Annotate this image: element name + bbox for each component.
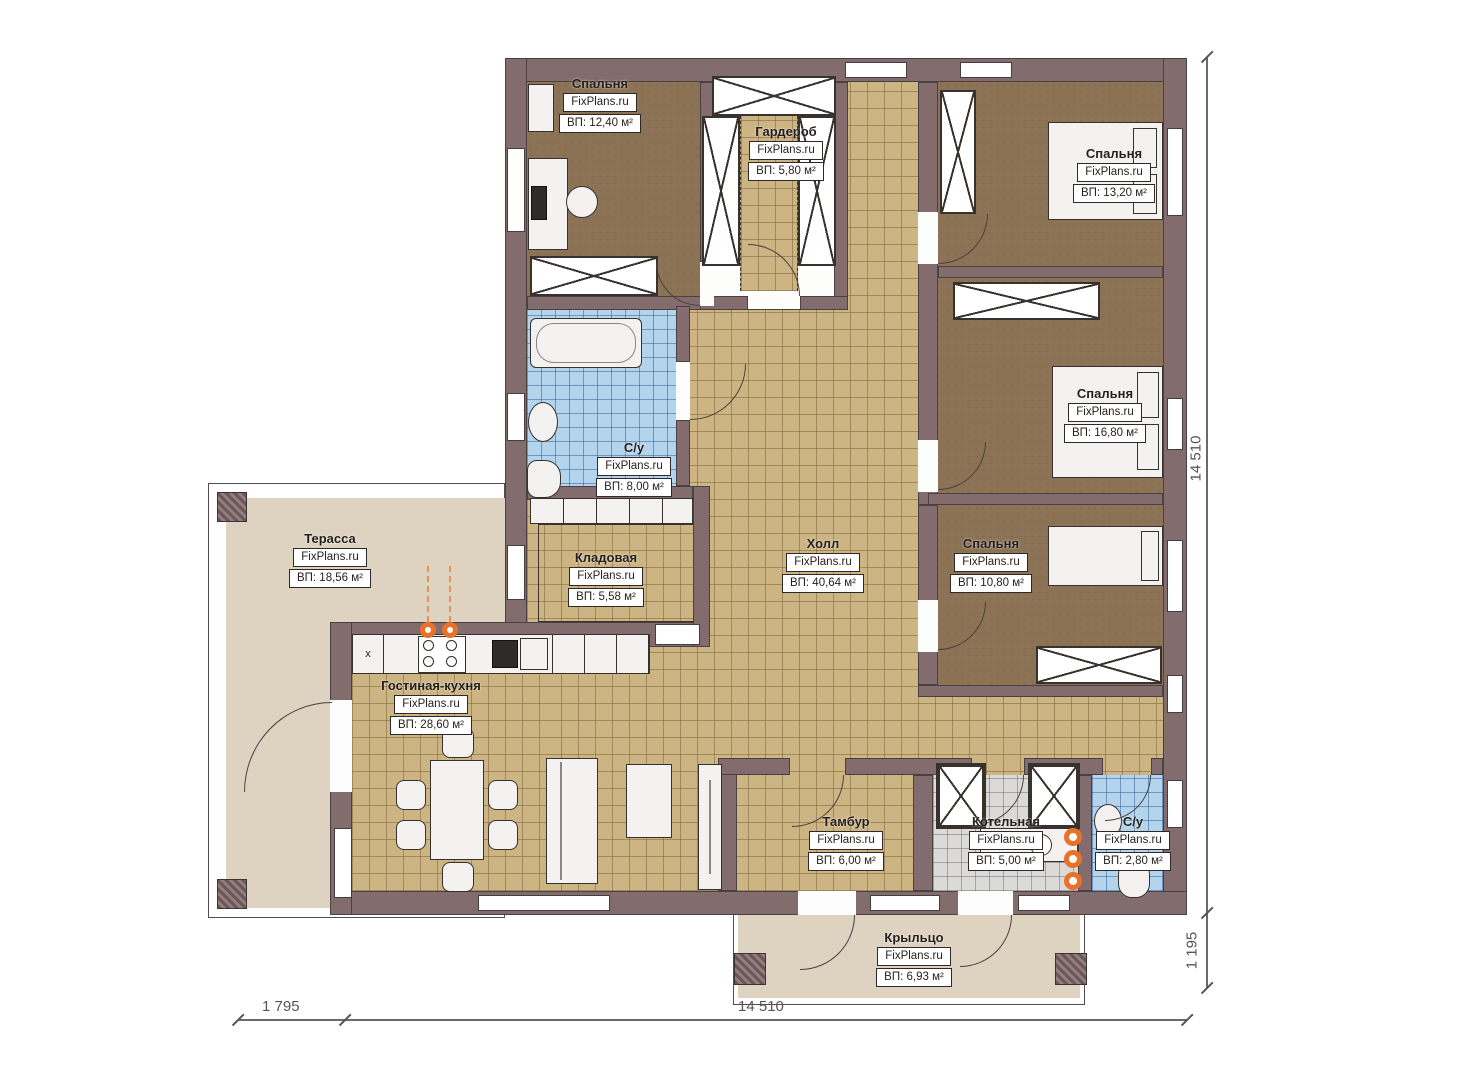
room-name: Спальня bbox=[1086, 146, 1142, 161]
window bbox=[507, 393, 525, 441]
room-area: ВП: 6,00 м² bbox=[808, 852, 884, 871]
room-area: ВП: 5,00 м² bbox=[968, 852, 1044, 871]
room-name: С/у bbox=[624, 440, 644, 455]
bathtub-inner bbox=[536, 323, 636, 363]
room-label-hall: Холл FixPlans.ru ВП: 40,64 м² bbox=[775, 536, 871, 593]
sofa bbox=[546, 758, 598, 884]
terrace-pillar bbox=[218, 493, 246, 521]
room-area: ВП: 10,80 м² bbox=[950, 574, 1032, 593]
room-name: Спальня bbox=[572, 76, 628, 91]
coffee-table bbox=[626, 764, 672, 838]
gas-riser bbox=[420, 622, 436, 638]
wall bbox=[1151, 758, 1163, 775]
room-name: Кладовая bbox=[575, 550, 637, 565]
window bbox=[1167, 540, 1183, 612]
window bbox=[507, 148, 525, 232]
window bbox=[334, 828, 352, 898]
room-area: ВП: 16,80 м² bbox=[1064, 424, 1146, 443]
room-label-porch: Крыльцо FixPlans.ru ВП: 6,93 м² bbox=[868, 930, 960, 987]
room-name: Котельная bbox=[972, 814, 1040, 829]
room-label-living: Гостиная-кухня FixPlans.ru ВП: 28,60 м² bbox=[376, 678, 486, 735]
chair bbox=[396, 780, 426, 810]
room-label-terrace: Терасса FixPlans.ru ВП: 18,56 м² bbox=[280, 531, 380, 588]
desk-computer bbox=[531, 186, 547, 220]
room-name: С/у bbox=[1123, 814, 1143, 829]
window bbox=[507, 545, 525, 600]
window bbox=[1167, 128, 1183, 216]
bed-pillow bbox=[1141, 531, 1159, 581]
room-name: Холл bbox=[807, 536, 840, 551]
room-label-bath-main: С/у FixPlans.ru ВП: 8,00 м² bbox=[586, 440, 682, 497]
porch-pillar bbox=[1056, 954, 1086, 984]
closet bbox=[530, 256, 658, 296]
dimension-line-bottom bbox=[238, 1019, 1187, 1021]
toilet bbox=[527, 460, 561, 498]
window bbox=[1167, 675, 1183, 713]
door-opening bbox=[676, 362, 690, 420]
watermark: FixPlans.ru bbox=[969, 831, 1043, 850]
chair bbox=[442, 862, 474, 892]
wall bbox=[913, 775, 933, 891]
door-opening bbox=[918, 600, 938, 652]
closet bbox=[1036, 646, 1162, 684]
kitchen-upper-cabinets bbox=[552, 634, 650, 674]
coffee-machine bbox=[492, 640, 518, 668]
window bbox=[478, 895, 610, 911]
window bbox=[960, 62, 1012, 78]
kitchen-sink bbox=[520, 638, 548, 670]
door-opening bbox=[798, 891, 856, 915]
window bbox=[870, 895, 940, 911]
watermark: FixPlans.ru bbox=[563, 93, 637, 112]
door-opening bbox=[700, 262, 714, 306]
chair bbox=[488, 820, 518, 850]
room-label-storage: Кладовая FixPlans.ru ВП: 5,58 м² bbox=[560, 550, 652, 607]
dimension-value-bottom-main: 14 510 bbox=[738, 998, 784, 1015]
built-in-shelf bbox=[530, 498, 693, 524]
kitchen-sink-cabinet: x bbox=[352, 634, 384, 674]
watermark: FixPlans.ru bbox=[954, 553, 1028, 572]
closet bbox=[953, 282, 1100, 320]
watermark: FixPlans.ru bbox=[809, 831, 883, 850]
room-area: ВП: 12,40 м² bbox=[559, 114, 641, 133]
window bbox=[1167, 398, 1183, 450]
valve bbox=[1064, 872, 1082, 890]
room-area: ВП: 8,00 м² bbox=[596, 478, 672, 497]
porch-pillar bbox=[735, 954, 765, 984]
room-label-tambur: Тамбур FixPlans.ru ВП: 6,00 м² bbox=[800, 814, 892, 871]
watermark: FixPlans.ru bbox=[877, 947, 951, 966]
room-area: ВП: 2,80 м² bbox=[1095, 852, 1171, 871]
wall bbox=[938, 266, 1163, 278]
dimension-value-bottom-terrace: 1 795 bbox=[262, 998, 300, 1015]
room-label-bedroom-3: Спальня FixPlans.ru ВП: 16,80 м² bbox=[1056, 386, 1154, 443]
watermark: FixPlans.ru bbox=[293, 548, 367, 567]
sink bbox=[528, 402, 558, 442]
window bbox=[845, 62, 907, 78]
door-opening bbox=[958, 891, 1013, 915]
wall bbox=[928, 493, 1163, 505]
room-label-boiler: Котельная FixPlans.ru ВП: 5,00 м² bbox=[958, 814, 1054, 871]
wall bbox=[718, 758, 790, 775]
watermark: FixPlans.ru bbox=[569, 567, 643, 586]
room-label-bedroom-2: Спальня FixPlans.ru ВП: 13,20 м² bbox=[1066, 146, 1162, 203]
watermark: FixPlans.ru bbox=[394, 695, 468, 714]
room-name: Спальня bbox=[963, 536, 1019, 551]
door-opening bbox=[918, 212, 938, 264]
valve bbox=[1064, 828, 1082, 846]
room-name: Гардероб bbox=[755, 124, 816, 139]
room-area: ВП: 13,20 м² bbox=[1073, 184, 1155, 203]
tv bbox=[709, 780, 711, 874]
kitchen-window bbox=[655, 624, 700, 645]
sofa-backrest bbox=[560, 762, 562, 880]
wall bbox=[800, 296, 848, 310]
gas-pipe bbox=[449, 566, 451, 622]
room-label-bedroom-1: Спальня FixPlans.ru ВП: 12,40 м² bbox=[550, 76, 650, 133]
closet bbox=[940, 90, 976, 214]
wall bbox=[676, 306, 690, 362]
room-area: ВП: 6,93 м² bbox=[876, 968, 952, 987]
wall bbox=[834, 82, 848, 310]
room-area: ВП: 40,64 м² bbox=[782, 574, 864, 593]
terrace-pillar bbox=[218, 880, 246, 908]
room-name: Спальня bbox=[1077, 386, 1133, 401]
wall bbox=[693, 486, 710, 647]
room-name: Терасса bbox=[304, 531, 356, 546]
room-area: ВП: 28,60 м² bbox=[390, 716, 472, 735]
wall bbox=[918, 505, 938, 685]
desk-chair bbox=[566, 186, 598, 218]
valve bbox=[1064, 850, 1082, 868]
door-opening bbox=[330, 700, 352, 792]
floor-plan-canvas: x Спальня FixPlans.ru ВП: 12,40 м² bbox=[0, 0, 1473, 1080]
room-name: Крыльцо bbox=[884, 930, 943, 945]
dining-table bbox=[430, 760, 484, 860]
watermark: FixPlans.ru bbox=[749, 141, 823, 160]
gas-pipe bbox=[427, 566, 429, 622]
chair bbox=[396, 820, 426, 850]
watermark: FixPlans.ru bbox=[786, 553, 860, 572]
door-opening bbox=[918, 440, 938, 492]
room-name: Гостиная-кухня bbox=[381, 678, 481, 693]
chair bbox=[488, 780, 518, 810]
closet bbox=[712, 76, 836, 116]
room-area: ВП: 5,80 м² bbox=[748, 162, 824, 181]
room-area: ВП: 5,58 м² bbox=[568, 588, 644, 607]
closet bbox=[702, 116, 740, 266]
gas-riser bbox=[442, 622, 458, 638]
room-label-bedroom-4: Спальня FixPlans.ru ВП: 10,80 м² bbox=[946, 536, 1036, 593]
watermark: FixPlans.ru bbox=[597, 457, 671, 476]
window bbox=[1018, 895, 1070, 911]
room-area: ВП: 18,56 м² bbox=[289, 569, 371, 588]
watermark: FixPlans.ru bbox=[1068, 403, 1142, 422]
dimension-value-right-porch: 1 195 bbox=[1184, 921, 1201, 981]
watermark: FixPlans.ru bbox=[1077, 163, 1151, 182]
room-label-bath-small: С/у FixPlans.ru ВП: 2,80 м² bbox=[1094, 814, 1172, 871]
dimension-value-right-main: 14 510 bbox=[1188, 429, 1205, 489]
room-name: Тамбур bbox=[822, 814, 869, 829]
dimension-line-right bbox=[1206, 57, 1208, 988]
watermark: FixPlans.ru bbox=[1096, 831, 1170, 850]
room-label-wardrobe: Гардероб FixPlans.ru ВП: 5,80 м² bbox=[740, 124, 832, 181]
wall bbox=[918, 685, 1163, 697]
